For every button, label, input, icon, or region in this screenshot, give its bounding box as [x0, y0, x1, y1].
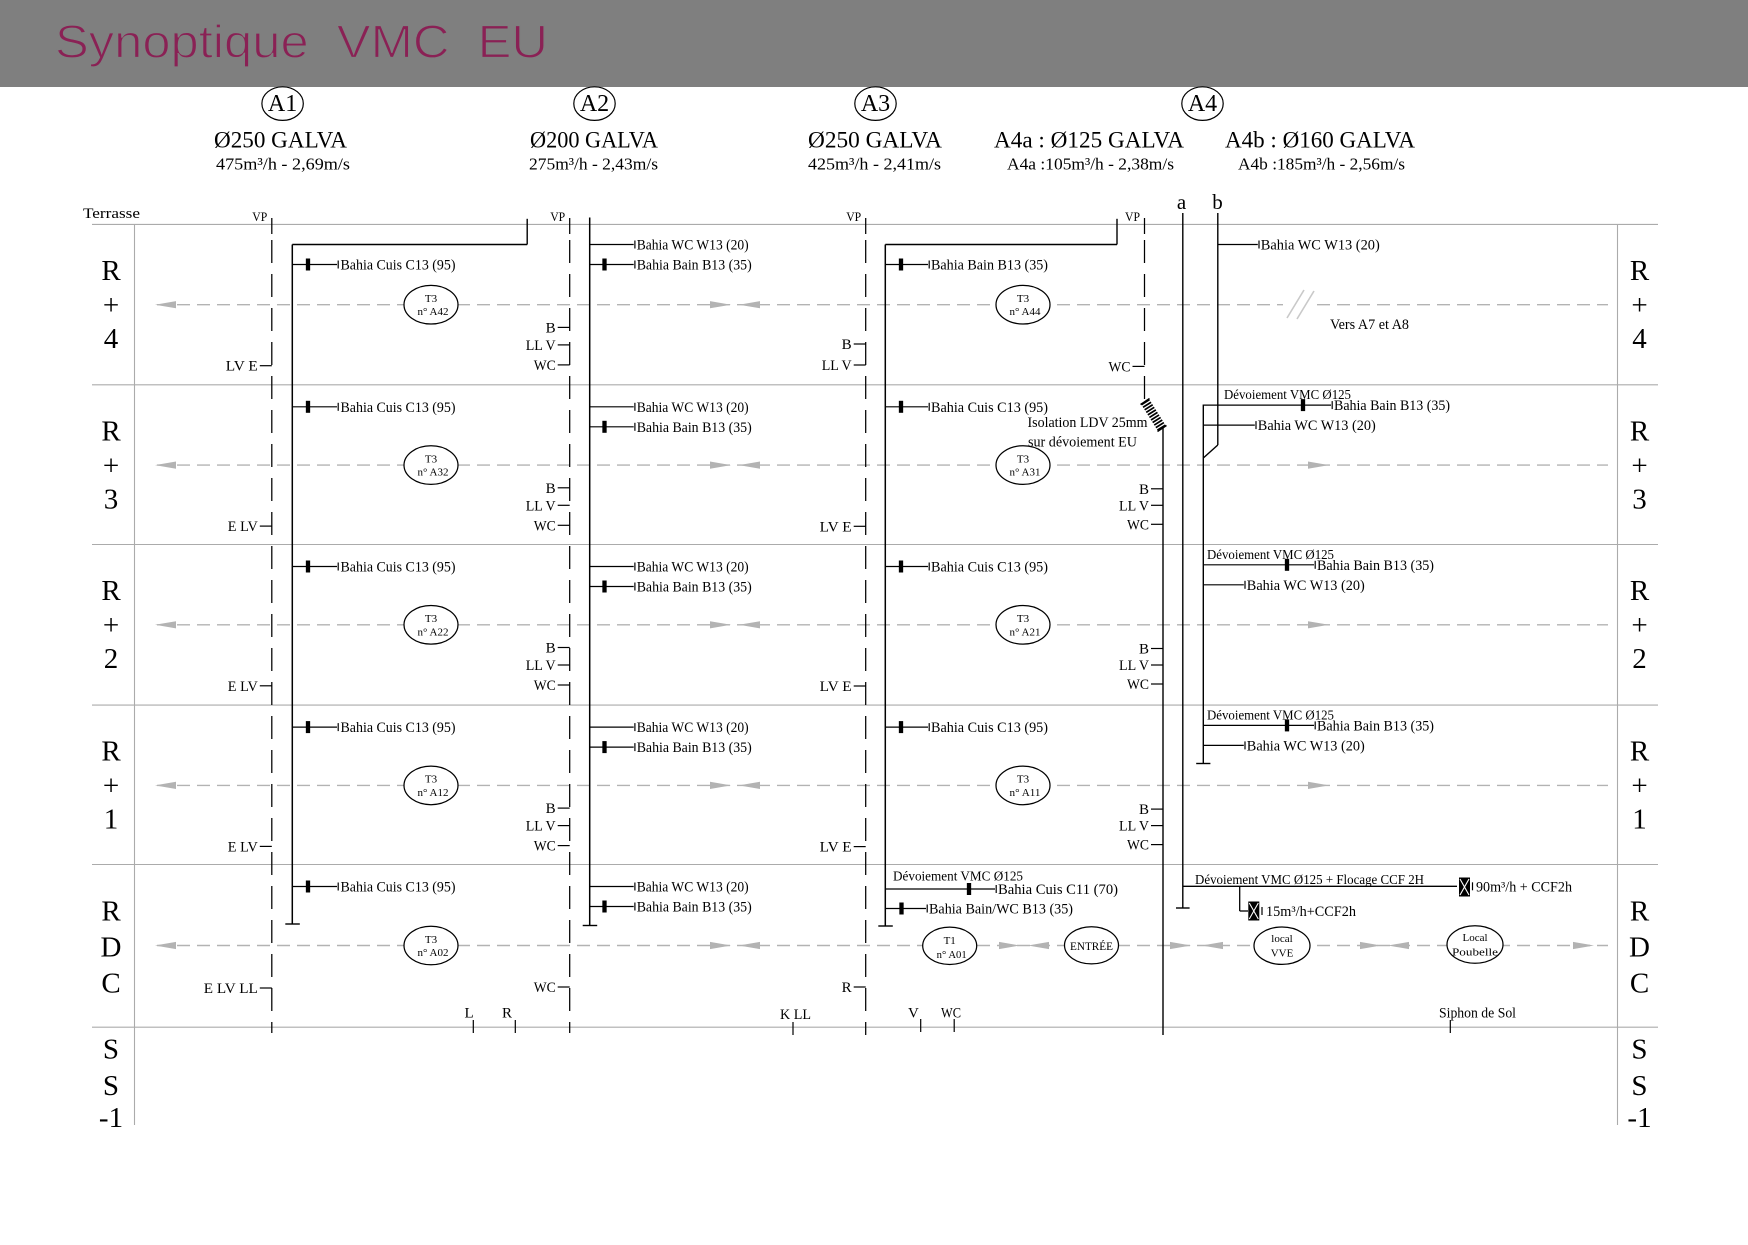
svg-text:R: R: [101, 415, 121, 447]
svg-text:a: a: [1177, 190, 1187, 214]
svg-text:Bahia Bain B13 (35): Bahia Bain B13 (35): [1317, 557, 1434, 574]
svg-text:WC: WC: [1127, 838, 1149, 854]
svg-text:Vers A7 et A8: Vers A7 et A8: [1330, 317, 1409, 333]
svg-text:+: +: [1631, 610, 1647, 642]
svg-text:Bahia WC W13 (20): Bahia WC W13 (20): [1258, 417, 1376, 434]
svg-text:LL V: LL V: [822, 358, 852, 374]
svg-text:R: R: [101, 896, 121, 928]
svg-text:B: B: [1139, 642, 1149, 658]
svg-text:LL V: LL V: [526, 658, 556, 674]
svg-text:Terrasse: Terrasse: [83, 206, 140, 222]
svg-text:LL V: LL V: [526, 819, 556, 835]
svg-text:S: S: [103, 1070, 119, 1102]
svg-text:VP: VP: [1125, 210, 1140, 224]
svg-text:n° A32: n° A32: [418, 468, 449, 479]
svg-text:LL V: LL V: [526, 498, 556, 514]
svg-text:B: B: [1139, 482, 1149, 498]
svg-text:n° A22: n° A22: [418, 627, 449, 638]
svg-text:B: B: [546, 801, 556, 817]
svg-text:Bahia WC W13 (20): Bahia WC W13 (20): [637, 237, 749, 254]
svg-text:+: +: [1631, 770, 1647, 802]
svg-text:WC: WC: [534, 358, 556, 374]
svg-text:Local: Local: [1462, 932, 1487, 944]
svg-text:Bahia WC W13 (20): Bahia WC W13 (20): [1247, 737, 1365, 754]
svg-text:local: local: [1271, 933, 1292, 945]
svg-text:Bahia Bain B13 (35): Bahia Bain B13 (35): [1317, 717, 1434, 734]
svg-text:WC: WC: [1127, 677, 1149, 693]
svg-text:A4b :185m³/h - 2,56m/s: A4b :185m³/h - 2,56m/s: [1238, 155, 1405, 174]
svg-text:A3: A3: [861, 91, 890, 117]
svg-text:WC: WC: [1127, 517, 1149, 533]
svg-text:R: R: [101, 736, 121, 768]
svg-text:n° A12: n° A12: [418, 788, 449, 799]
svg-text:T3: T3: [1017, 613, 1030, 625]
svg-text:Bahia Cuis C11 (70): Bahia Cuis C11 (70): [998, 881, 1118, 898]
svg-text:Dévoiement VMC Ø125: Dévoiement VMC Ø125: [1207, 548, 1334, 563]
svg-text:T3: T3: [425, 453, 438, 465]
svg-text:T3: T3: [425, 934, 438, 946]
svg-text:R: R: [101, 255, 121, 287]
svg-text:Ø200 GALVA: Ø200 GALVA: [530, 128, 658, 153]
svg-text:R: R: [1630, 415, 1650, 447]
svg-text:B: B: [842, 337, 852, 353]
svg-text:b: b: [1212, 190, 1223, 214]
svg-text:L: L: [465, 1006, 474, 1022]
svg-text:K LL: K LL: [780, 1007, 811, 1023]
svg-text:Poubelle: Poubelle: [1452, 947, 1498, 958]
svg-text:T3: T3: [1017, 293, 1030, 305]
svg-text:LL V: LL V: [1119, 819, 1149, 835]
svg-text:S: S: [1631, 1070, 1647, 1102]
svg-text:WC: WC: [534, 678, 556, 694]
svg-text:R: R: [842, 980, 852, 996]
svg-text:Siphon de Sol: Siphon de Sol: [1439, 1006, 1516, 1022]
svg-text:T3: T3: [425, 774, 438, 786]
svg-text:Bahia Cuis C13 (95): Bahia Cuis C13 (95): [931, 719, 1048, 736]
svg-text:VVE: VVE: [1271, 947, 1294, 959]
svg-text:Synoptique VMC EU: Synoptique VMC EU: [55, 16, 548, 68]
svg-text:n° A44: n° A44: [1010, 307, 1042, 318]
svg-text:Bahia Bain B13 (35): Bahia Bain B13 (35): [637, 899, 752, 916]
svg-text:+: +: [1631, 450, 1647, 482]
svg-text:Bahia Bain B13 (35): Bahia Bain B13 (35): [637, 257, 752, 274]
svg-text:S: S: [1631, 1034, 1647, 1066]
svg-text:Bahia WC W13 (20): Bahia WC W13 (20): [637, 879, 749, 896]
svg-text:Bahia WC W13 (20): Bahia WC W13 (20): [637, 399, 749, 416]
svg-text:E LV LL: E LV LL: [204, 981, 258, 997]
svg-text:Bahia Cuis C13 (95): Bahia Cuis C13 (95): [341, 719, 456, 736]
svg-text:E LV: E LV: [228, 679, 258, 695]
svg-text:VP: VP: [252, 210, 267, 224]
svg-text:Bahia Bain B13 (35): Bahia Bain B13 (35): [1334, 397, 1450, 414]
svg-text:+: +: [1631, 289, 1647, 321]
svg-text:R: R: [502, 1006, 512, 1022]
svg-text:Bahia WC W13 (20): Bahia WC W13 (20): [637, 719, 749, 736]
svg-text:3: 3: [1632, 483, 1647, 515]
svg-text:Bahia Bain B13 (35): Bahia Bain B13 (35): [637, 419, 752, 436]
svg-text:Bahia Cuis C13 (95): Bahia Cuis C13 (95): [341, 399, 456, 416]
svg-text:n° A21: n° A21: [1010, 627, 1041, 638]
svg-text:A2: A2: [580, 91, 609, 117]
svg-text:Bahia WC W13 (20): Bahia WC W13 (20): [637, 559, 749, 576]
svg-text:T3: T3: [425, 293, 438, 305]
svg-text:D: D: [101, 932, 122, 964]
svg-text:425m³/h - 2,41m/s: 425m³/h - 2,41m/s: [808, 155, 941, 174]
svg-text:+: +: [103, 770, 119, 802]
svg-text:Bahia WC W13 (20): Bahia WC W13 (20): [1261, 237, 1380, 254]
svg-text:+: +: [103, 450, 119, 482]
svg-text:Bahia Cuis C13 (95): Bahia Cuis C13 (95): [341, 559, 456, 576]
svg-text:C: C: [101, 968, 120, 1000]
svg-text:B: B: [1139, 802, 1149, 818]
svg-text:275m³/h - 2,43m/s: 275m³/h - 2,43m/s: [529, 155, 658, 174]
svg-text:Bahia Cuis C13 (95): Bahia Cuis C13 (95): [341, 879, 456, 896]
svg-text:V: V: [908, 1006, 919, 1022]
svg-text:Ø250 GALVA: Ø250 GALVA: [214, 128, 347, 153]
svg-text:Bahia Cuis C13 (95): Bahia Cuis C13 (95): [931, 559, 1048, 576]
svg-text:LV E: LV E: [820, 840, 852, 856]
svg-text:-1: -1: [99, 1102, 123, 1134]
svg-text:Bahia Bain B13 (35): Bahia Bain B13 (35): [637, 739, 752, 756]
svg-text:1: 1: [104, 804, 119, 836]
svg-text:T3: T3: [425, 613, 438, 625]
svg-text:WC: WC: [534, 839, 556, 855]
svg-text:LV E: LV E: [820, 679, 852, 695]
svg-text:3: 3: [104, 483, 119, 515]
svg-text:n° A01: n° A01: [937, 950, 967, 961]
svg-text:T1: T1: [944, 935, 956, 947]
svg-text:VP: VP: [846, 210, 861, 224]
svg-text:n° A02: n° A02: [418, 948, 449, 959]
svg-text:C: C: [1630, 968, 1649, 1000]
svg-text:A4a : Ø125 GALVA: A4a : Ø125 GALVA: [994, 128, 1184, 153]
svg-text:1: 1: [1632, 804, 1647, 836]
svg-text:R: R: [1630, 255, 1650, 287]
svg-text:4: 4: [1632, 323, 1647, 355]
svg-text:n° A42: n° A42: [418, 307, 449, 318]
svg-text:Bahia Bain B13 (35): Bahia Bain B13 (35): [931, 257, 1048, 274]
svg-text:VP: VP: [550, 210, 565, 224]
svg-text:A1: A1: [268, 91, 297, 117]
svg-text:15m³/h+CCF2h: 15m³/h+CCF2h: [1266, 904, 1357, 920]
svg-text:Dévoiement VMC Ø125: Dévoiement VMC Ø125: [1207, 709, 1334, 724]
svg-text:Bahia Cuis C13 (95): Bahia Cuis C13 (95): [931, 399, 1048, 416]
svg-text:E LV: E LV: [228, 839, 258, 855]
svg-text:WC: WC: [1109, 359, 1131, 375]
svg-text:R: R: [1630, 575, 1650, 607]
svg-text:LL V: LL V: [1119, 658, 1149, 674]
svg-text:WC: WC: [941, 1006, 961, 1022]
svg-text:A4: A4: [1188, 91, 1217, 117]
svg-text:WC: WC: [534, 980, 556, 996]
svg-text:LV E: LV E: [226, 359, 258, 375]
svg-text:n° A31: n° A31: [1010, 468, 1041, 479]
svg-text:B: B: [546, 641, 556, 657]
svg-text:R: R: [1630, 736, 1650, 768]
svg-text:-1: -1: [1627, 1102, 1651, 1134]
svg-text:LL V: LL V: [1119, 498, 1149, 514]
svg-text:+: +: [103, 289, 119, 321]
svg-text:2: 2: [104, 643, 119, 675]
svg-text:2: 2: [1632, 643, 1647, 675]
svg-text:E LV: E LV: [228, 519, 258, 535]
svg-text:R: R: [1630, 896, 1650, 928]
svg-text:A4b : Ø160 GALVA: A4b : Ø160 GALVA: [1225, 128, 1415, 153]
svg-text:Dévoiement VMC Ø125: Dévoiement VMC Ø125: [1224, 388, 1351, 403]
svg-text:T3: T3: [1017, 774, 1030, 786]
svg-text:T3: T3: [1017, 453, 1030, 465]
svg-text:4: 4: [104, 323, 119, 355]
svg-text:A4a :105m³/h - 2,38m/s: A4a :105m³/h - 2,38m/s: [1007, 155, 1174, 174]
svg-text:90m³/h + CCF2h: 90m³/h + CCF2h: [1476, 879, 1573, 895]
svg-text:Bahia Bain B13 (35): Bahia Bain B13 (35): [637, 579, 752, 596]
svg-text:S: S: [103, 1034, 119, 1066]
svg-text:n° A11: n° A11: [1010, 788, 1041, 799]
svg-text:Isolation LDV 25mm: Isolation LDV 25mm: [1028, 415, 1148, 431]
svg-text:WC: WC: [534, 518, 556, 534]
svg-text:LV E: LV E: [820, 519, 852, 535]
svg-text:Bahia Bain/WC B13 (35): Bahia Bain/WC B13 (35): [929, 901, 1073, 918]
svg-text:D: D: [1629, 932, 1650, 964]
svg-text:B: B: [546, 320, 556, 336]
svg-text:LL V: LL V: [526, 338, 556, 354]
svg-text:B: B: [546, 481, 556, 497]
svg-text:Bahia Cuis C13 (95): Bahia Cuis C13 (95): [341, 257, 456, 274]
svg-text:+: +: [103, 610, 119, 642]
svg-text:sur dévoiement EU: sur dévoiement EU: [1028, 435, 1137, 451]
svg-text:ENTRÉE: ENTRÉE: [1070, 939, 1113, 953]
svg-text:R: R: [101, 575, 121, 607]
svg-text:Bahia WC W13 (20): Bahia WC W13 (20): [1247, 577, 1365, 594]
svg-text:475m³/h - 2,69m/s: 475m³/h - 2,69m/s: [216, 155, 350, 174]
svg-text:Ø250 GALVA: Ø250 GALVA: [808, 128, 942, 153]
